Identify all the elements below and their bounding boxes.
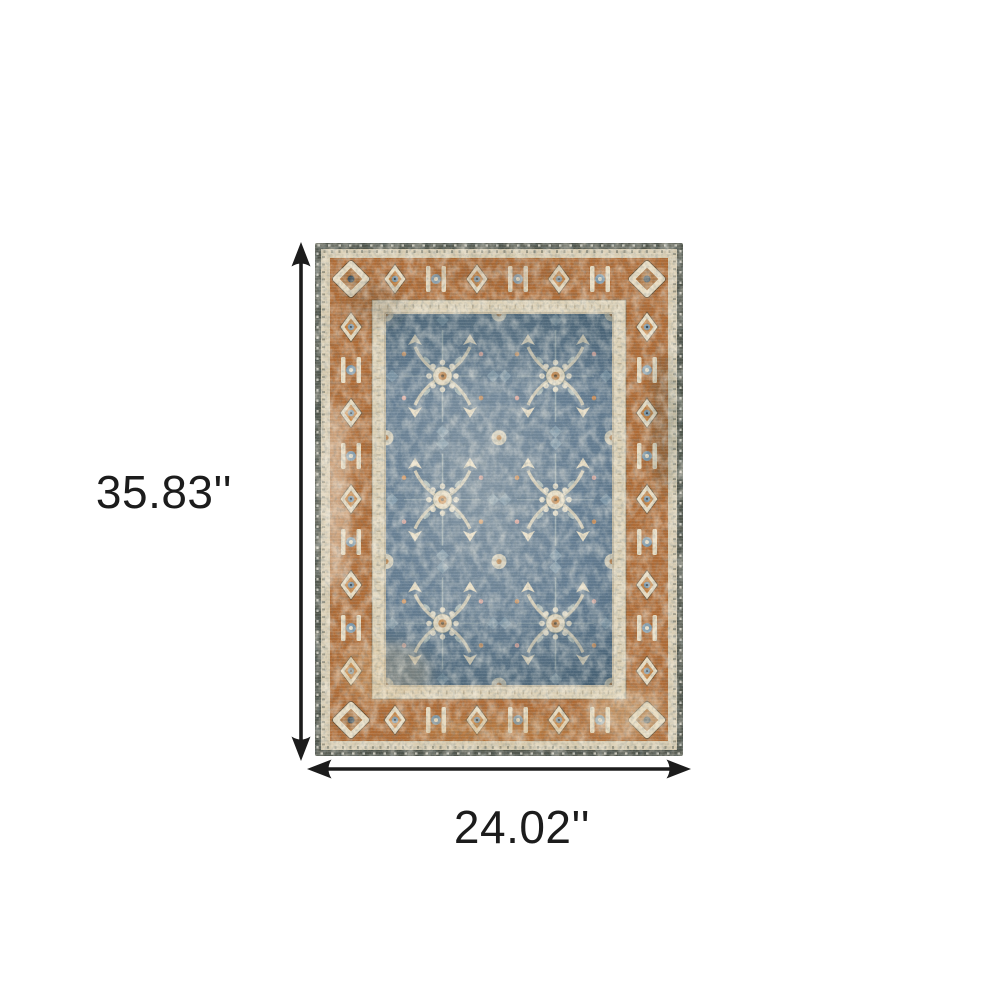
width-dimension-label: 24.02'' [454,804,590,850]
width-dimension-arrow [306,757,692,781]
height-dimension-label: 35.83'' [96,469,232,515]
product-dimension-diagram: 35.83'' 24.02'' [0,0,1000,1000]
height-dimension-arrow [289,241,313,762]
rug-image [315,243,683,756]
